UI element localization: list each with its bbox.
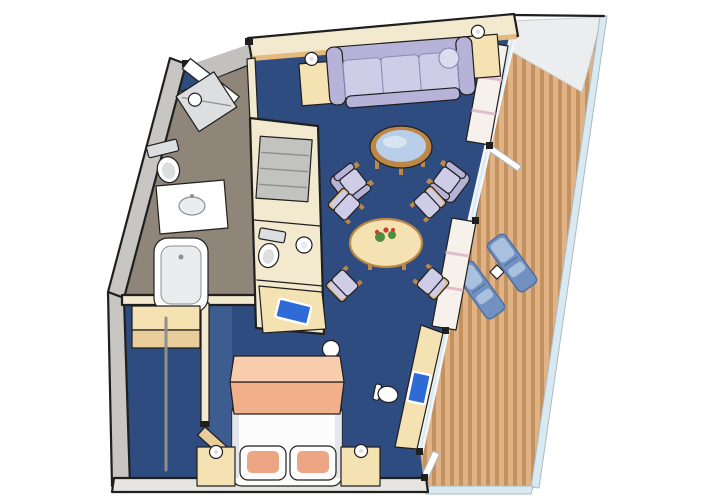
linen-shelves	[256, 136, 312, 201]
pillow-right	[290, 446, 336, 480]
bedside-lamp-left	[210, 446, 223, 459]
double-bed	[230, 356, 344, 486]
balcony-top-edge	[514, 15, 604, 16]
table-lamp-right	[471, 25, 485, 39]
wc-washbasin	[296, 237, 312, 253]
railing-bottom	[426, 486, 533, 494]
floor-plan-canvas	[0, 0, 720, 500]
closet-bedroom-wall	[201, 303, 209, 426]
pillow-left	[240, 446, 286, 480]
bathtub	[154, 238, 208, 312]
stool	[323, 341, 340, 358]
sofa	[326, 36, 476, 109]
dining-table	[350, 219, 422, 267]
folded-blanket-front	[230, 382, 344, 414]
washbasin-counter	[156, 180, 228, 234]
suite-floor-plan	[0, 0, 720, 500]
bedside-lamp-right	[355, 445, 368, 458]
table-lamp-left	[305, 52, 319, 66]
folded-blanket-top	[230, 356, 344, 382]
